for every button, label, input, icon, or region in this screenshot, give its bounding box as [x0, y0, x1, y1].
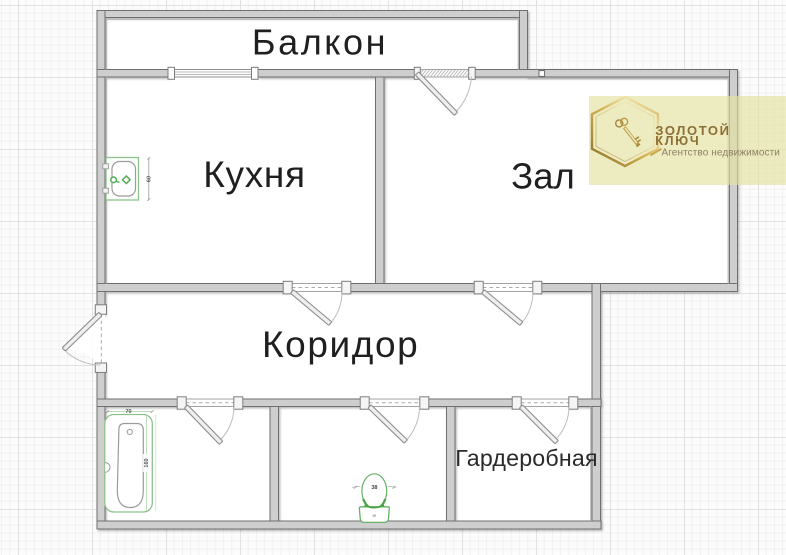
- svg-text:Агентство недвижимости: Агентство недвижимости: [662, 147, 780, 158]
- svg-text:Коридор: Коридор: [262, 324, 419, 365]
- svg-text:60: 60: [146, 176, 152, 182]
- svg-text:Кухня: Кухня: [203, 154, 306, 195]
- svg-text:70: 70: [125, 409, 131, 415]
- svg-text:38: 38: [371, 485, 377, 491]
- svg-text:КЛЮЧ: КЛЮЧ: [655, 134, 700, 148]
- svg-text:Гардеробная: Гардеробная: [455, 445, 597, 471]
- svg-text:Балкон: Балкон: [252, 21, 388, 62]
- svg-text:160: 160: [144, 458, 150, 467]
- svg-text:Зал: Зал: [511, 156, 575, 197]
